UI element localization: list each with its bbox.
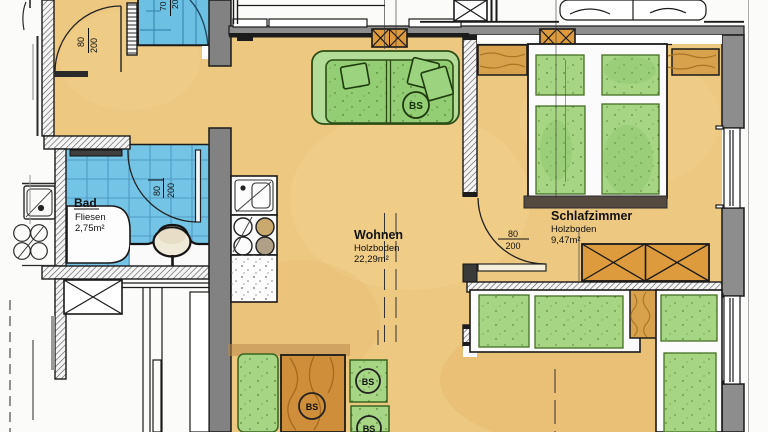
- svg-text:80: 80: [76, 37, 86, 47]
- svg-text:22,29m²: 22,29m²: [354, 254, 389, 265]
- svg-text:BS: BS: [306, 402, 319, 412]
- svg-text:Schlafzimmer: Schlafzimmer: [551, 209, 632, 223]
- svg-text:80: 80: [508, 229, 518, 239]
- svg-text:80: 80: [152, 186, 162, 196]
- svg-text:Holzboden: Holzboden: [551, 224, 596, 235]
- svg-text:BS: BS: [363, 424, 376, 432]
- svg-text:200: 200: [170, 0, 180, 9]
- svg-text:Bad: Bad: [74, 196, 97, 210]
- svg-text:70: 70: [158, 1, 168, 11]
- svg-text:BS: BS: [362, 377, 375, 387]
- svg-text:200: 200: [89, 38, 99, 53]
- svg-text:9,47m²: 9,47m²: [551, 235, 581, 246]
- svg-text:Fliesen: Fliesen: [75, 212, 106, 223]
- svg-text:Holzboden: Holzboden: [354, 243, 399, 254]
- svg-text:200: 200: [505, 241, 520, 251]
- svg-text:2,75m²: 2,75m²: [75, 223, 105, 234]
- svg-text:BS: BS: [409, 101, 423, 112]
- svg-text:200: 200: [166, 183, 176, 198]
- svg-text:Wohnen: Wohnen: [354, 228, 403, 242]
